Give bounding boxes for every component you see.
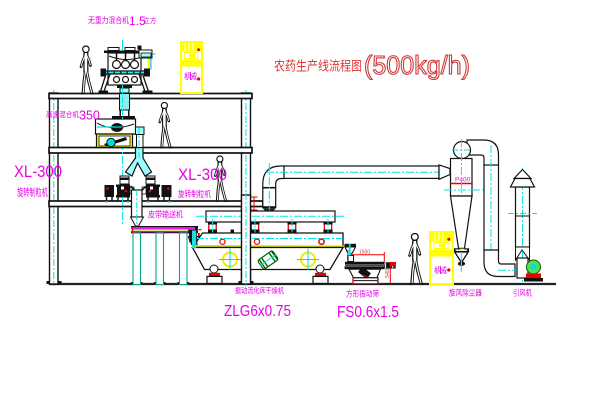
svg-text:旋转制粒机: 旋转制粒机 [178,189,211,199]
svg-text:XL-300: XL-300 [14,163,62,181]
svg-text:方形振动筛: 方形振动筛 [346,289,379,299]
svg-text:立方: 立方 [143,16,157,25]
svg-text:机械: 机械 [184,71,197,81]
svg-text:旋转制粒机: 旋转制粒机 [17,186,48,199]
svg-text:ZLG6x0.75: ZLG6x0.75 [224,303,291,320]
svg-text:FS0.6x1.5: FS0.6x1.5 [337,304,399,321]
svg-text:皮带输送机: 皮带输送机 [148,210,183,220]
svg-text:无重力混合机: 无重力混合机 [88,15,129,25]
svg-text:XL-300: XL-300 [178,166,227,184]
svg-text:机械: 机械 [434,265,447,275]
svg-text:350: 350 [79,109,100,123]
svg-text:P400: P400 [455,177,471,184]
svg-text:农药生产线流程图: 农药生产线流程图 [274,59,362,74]
svg-text:540: 540 [385,269,391,278]
svg-text:高速混合机: 高速混合机 [46,109,79,119]
svg-text:1500: 1500 [359,250,370,256]
svg-text:振动流化床干燥机: 振动流化床干燥机 [235,285,284,295]
svg-text:引风机: 引风机 [513,288,532,298]
svg-text:旋风除尘器: 旋风除尘器 [449,288,482,298]
svg-text:(500kg/h): (500kg/h) [364,50,470,80]
